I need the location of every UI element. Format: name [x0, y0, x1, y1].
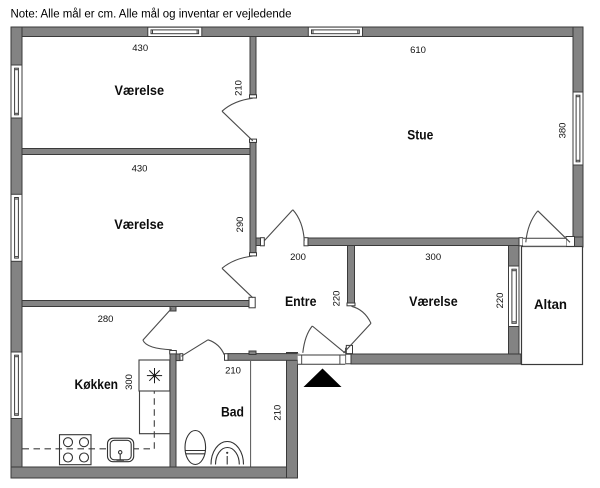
svg-text:430: 430 — [132, 163, 148, 174]
svg-text:200: 200 — [290, 252, 306, 263]
svg-text:Stue: Stue — [407, 128, 433, 143]
svg-text:210: 210 — [234, 80, 245, 96]
svg-text:Altan: Altan — [534, 297, 567, 312]
svg-text:210: 210 — [272, 405, 283, 421]
svg-text:280: 280 — [98, 314, 114, 325]
svg-text:Værelse: Værelse — [114, 217, 164, 232]
svg-text:Køkken: Køkken — [75, 377, 119, 392]
svg-text:Værelse: Værelse — [409, 294, 458, 309]
svg-text:300: 300 — [124, 374, 135, 390]
svg-text:430: 430 — [132, 43, 148, 54]
svg-text:610: 610 — [410, 45, 426, 56]
svg-text:Note: Alle mål er cm. Alle mål: Note: Alle mål er cm. Alle mål og invent… — [11, 9, 292, 21]
svg-text:290: 290 — [235, 217, 246, 233]
svg-text:Værelse: Værelse — [115, 83, 165, 98]
svg-text:210: 210 — [225, 366, 241, 377]
svg-text:380: 380 — [558, 123, 569, 139]
svg-text:220: 220 — [332, 291, 343, 307]
svg-text:300: 300 — [425, 252, 441, 263]
svg-text:Bad: Bad — [221, 404, 244, 419]
svg-text:220: 220 — [495, 293, 506, 309]
svg-text:Entre: Entre — [285, 294, 317, 309]
